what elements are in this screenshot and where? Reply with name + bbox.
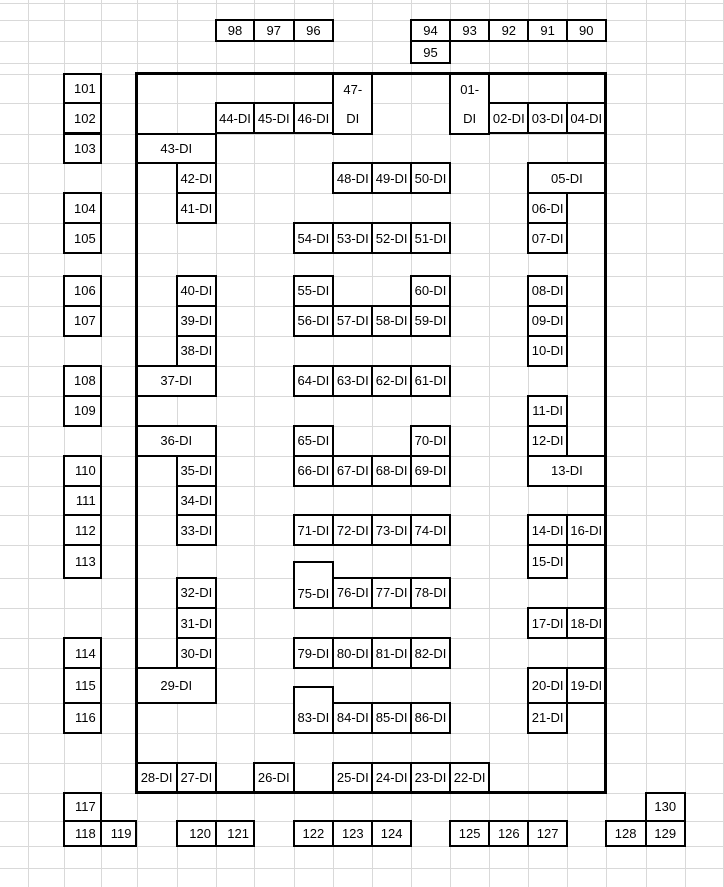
cell-103[interactable]: 103	[63, 133, 102, 165]
cell-123[interactable]: 123	[332, 820, 373, 847]
cell-05-DI[interactable]: 05-DI	[527, 162, 606, 194]
cell-126[interactable]: 126	[488, 820, 529, 847]
cell-64-DI[interactable]: 64-DI	[293, 365, 335, 397]
cell-81-DI[interactable]: 81-DI	[371, 637, 412, 669]
cell-50-DI[interactable]: 50-DI	[410, 162, 451, 194]
cell-47-DI[interactable]: 47- DI	[332, 73, 373, 135]
cell-122[interactable]: 122	[293, 820, 335, 847]
cell-77-DI[interactable]: 77-DI	[371, 577, 412, 609]
cell-39-DI[interactable]: 39-DI	[176, 305, 217, 337]
cell-17-DI[interactable]: 17-DI	[527, 607, 568, 639]
cell-73-DI[interactable]: 73-DI	[371, 514, 412, 546]
cell-45-DI[interactable]: 45-DI	[253, 102, 295, 134]
cell-79-DI[interactable]: 79-DI	[293, 637, 335, 669]
cell-75-DI[interactable]: 75-DI	[293, 561, 335, 609]
cell-96[interactable]: 96	[293, 19, 335, 42]
cell-68-DI[interactable]: 68-DI	[371, 455, 412, 487]
cell-107[interactable]: 107	[63, 305, 102, 337]
gridline-horizontal	[0, 426, 724, 427]
cell-14-DI[interactable]: 14-DI	[527, 514, 568, 546]
cell-112[interactable]: 112	[63, 514, 102, 546]
cell-15-DI[interactable]: 15-DI	[527, 544, 568, 578]
cell-119[interactable]: 119	[100, 820, 138, 847]
cell-46-DI[interactable]: 46-DI	[293, 102, 335, 134]
cell-53-DI[interactable]: 53-DI	[332, 222, 373, 254]
cell-94[interactable]: 94	[410, 19, 451, 42]
cell-62-DI[interactable]: 62-DI	[371, 365, 412, 397]
cell-31-DI[interactable]: 31-DI	[176, 607, 217, 639]
cell-110[interactable]: 110	[63, 455, 102, 487]
cell-22-DI[interactable]: 22-DI	[449, 762, 490, 794]
cell-10-DI[interactable]: 10-DI	[527, 335, 568, 367]
cell-91[interactable]: 91	[527, 19, 568, 42]
cell-115[interactable]: 115	[63, 667, 102, 704]
cell-23-DI[interactable]: 23-DI	[410, 762, 451, 794]
cell-38-DI[interactable]: 38-DI	[176, 335, 217, 367]
cell-28-DI[interactable]: 28-DI	[136, 762, 178, 794]
cell-20-DI[interactable]: 20-DI	[527, 667, 568, 704]
cell-85-DI[interactable]: 85-DI	[371, 702, 412, 734]
cell-84-DI[interactable]: 84-DI	[332, 702, 373, 734]
cell-116[interactable]: 116	[63, 702, 102, 734]
cell-93[interactable]: 93	[449, 19, 490, 42]
spreadsheet-canvas: 9897969493929190951011021031041051061071…	[0, 0, 724, 887]
cell-33-DI[interactable]: 33-DI	[176, 514, 217, 546]
cell-56-DI[interactable]: 56-DI	[293, 305, 335, 337]
cell-41-DI[interactable]: 41-DI	[176, 192, 217, 224]
cell-26-DI[interactable]: 26-DI	[253, 762, 295, 794]
cell-32-DI[interactable]: 32-DI	[176, 577, 217, 609]
cell-21-DI[interactable]: 21-DI	[527, 702, 568, 734]
cell-02-DI[interactable]: 02-DI	[488, 102, 529, 134]
cell-80-DI[interactable]: 80-DI	[332, 637, 373, 669]
cell-98[interactable]: 98	[215, 19, 255, 42]
cell-76-DI[interactable]: 76-DI	[332, 577, 373, 609]
cell-58-DI[interactable]: 58-DI	[371, 305, 412, 337]
cell-72-DI[interactable]: 72-DI	[332, 514, 373, 546]
cell-130[interactable]: 130	[645, 792, 686, 823]
cell-67-DI[interactable]: 67-DI	[332, 455, 373, 487]
cell-34-DI[interactable]: 34-DI	[176, 485, 217, 517]
cell-01-DI[interactable]: 01- DI	[449, 73, 490, 135]
cell-66-DI[interactable]: 66-DI	[293, 455, 335, 487]
cell-106[interactable]: 106	[63, 275, 102, 307]
cell-108[interactable]: 108	[63, 365, 102, 397]
cell-40-DI[interactable]: 40-DI	[176, 275, 217, 307]
cell-83-DI[interactable]: 83-DI	[293, 686, 335, 734]
cell-111[interactable]: 111	[63, 485, 102, 517]
gridline-horizontal	[0, 276, 724, 277]
cell-08-DI[interactable]: 08-DI	[527, 275, 568, 307]
cell-27-DI[interactable]: 27-DI	[176, 762, 217, 794]
cell-70-DI[interactable]: 70-DI	[410, 425, 451, 457]
cell-48-DI[interactable]: 48-DI	[332, 162, 373, 194]
cell-101[interactable]: 101	[63, 73, 102, 105]
cell-19-DI[interactable]: 19-DI	[566, 667, 607, 704]
cell-63-DI[interactable]: 63-DI	[332, 365, 373, 397]
cell-55-DI[interactable]: 55-DI	[293, 275, 335, 307]
cell-16-DI[interactable]: 16-DI	[566, 514, 607, 546]
cell-124[interactable]: 124	[371, 820, 412, 847]
cell-37-DI[interactable]: 37-DI	[136, 365, 218, 397]
gridline-horizontal	[0, 868, 724, 869]
cell-74-DI[interactable]: 74-DI	[410, 514, 451, 546]
cell-24-DI[interactable]: 24-DI	[371, 762, 412, 794]
cell-69-DI[interactable]: 69-DI	[410, 455, 451, 487]
cell-104[interactable]: 104	[63, 192, 102, 224]
cell-18-DI[interactable]: 18-DI	[566, 607, 607, 639]
cell-42-DI[interactable]: 42-DI	[176, 162, 217, 194]
gridline-horizontal	[0, 63, 724, 64]
cell-51-DI[interactable]: 51-DI	[410, 222, 451, 254]
cell-44-DI[interactable]: 44-DI	[215, 102, 255, 134]
cell-04-DI[interactable]: 04-DI	[566, 102, 607, 134]
cell-121[interactable]: 121	[215, 820, 255, 847]
cell-128[interactable]: 128	[605, 820, 647, 847]
cell-114[interactable]: 114	[63, 637, 102, 669]
cell-49-DI[interactable]: 49-DI	[371, 162, 412, 194]
cell-59-DI[interactable]: 59-DI	[410, 305, 451, 337]
cell-54-DI[interactable]: 54-DI	[293, 222, 335, 254]
cell-92[interactable]: 92	[488, 19, 529, 42]
cell-57-DI[interactable]: 57-DI	[332, 305, 373, 337]
cell-60-DI[interactable]: 60-DI	[410, 275, 451, 307]
cell-12-DI[interactable]: 12-DI	[527, 425, 568, 457]
cell-61-DI[interactable]: 61-DI	[410, 365, 451, 397]
cell-11-DI[interactable]: 11-DI	[527, 395, 568, 427]
cell-97[interactable]: 97	[253, 19, 295, 42]
gridline-horizontal	[0, 41, 724, 42]
cell-65-DI[interactable]: 65-DI	[293, 425, 335, 457]
cell-03-DI[interactable]: 03-DI	[527, 102, 568, 134]
cell-102[interactable]: 102	[63, 102, 102, 134]
cell-36-DI[interactable]: 36-DI	[136, 425, 218, 457]
cell-35-DI[interactable]: 35-DI	[176, 455, 217, 487]
cell-95[interactable]: 95	[410, 40, 451, 64]
cell-78-DI[interactable]: 78-DI	[410, 577, 451, 609]
cell-86-DI[interactable]: 86-DI	[410, 702, 451, 734]
cell-29-DI[interactable]: 29-DI	[136, 667, 218, 704]
cell-109[interactable]: 109	[63, 395, 102, 427]
gridline-horizontal	[0, 3, 724, 4]
cell-82-DI[interactable]: 82-DI	[410, 637, 451, 669]
cell-25-DI[interactable]: 25-DI	[332, 762, 373, 794]
cell-30-DI[interactable]: 30-DI	[176, 637, 217, 669]
cell-127[interactable]: 127	[527, 820, 568, 847]
gridline-horizontal	[0, 20, 724, 21]
cell-105[interactable]: 105	[63, 222, 102, 254]
cell-71-DI[interactable]: 71-DI	[293, 514, 335, 546]
cell-129[interactable]: 129	[645, 820, 686, 847]
cell-120[interactable]: 120	[176, 820, 217, 847]
cell-52-DI[interactable]: 52-DI	[371, 222, 412, 254]
cell-09-DI[interactable]: 09-DI	[527, 305, 568, 337]
cell-117[interactable]: 117	[63, 792, 102, 823]
cell-07-DI[interactable]: 07-DI	[527, 222, 568, 254]
cell-13-DI[interactable]: 13-DI	[527, 455, 606, 487]
cell-06-DI[interactable]: 06-DI	[527, 192, 568, 224]
cell-125[interactable]: 125	[449, 820, 490, 847]
cell-90[interactable]: 90	[566, 19, 607, 42]
cell-118[interactable]: 118	[63, 820, 102, 847]
cell-113[interactable]: 113	[63, 544, 102, 578]
cell-43-DI[interactable]: 43-DI	[136, 133, 218, 165]
